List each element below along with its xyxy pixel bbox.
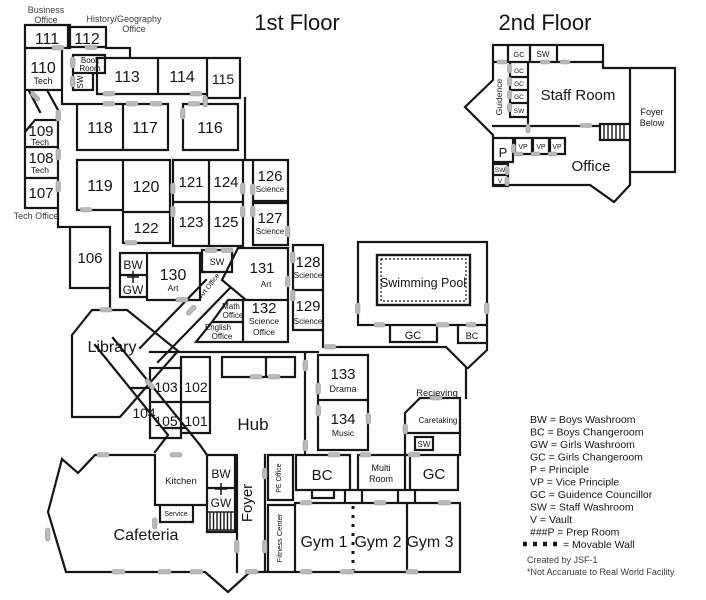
legend-line-prep: ###P = Prep Room [530, 527, 620, 539]
f2-sw1-label: SW [514, 108, 525, 115]
math-office-label-2: Office [223, 311, 244, 320]
f2-sw-top-label: SW [537, 50, 550, 59]
stairs-first-floor [207, 512, 235, 530]
school-floor-plan: 1st Floor 2nd Floor Business Office Hist… [0, 0, 706, 600]
room-119-label: 119 [87, 178, 113, 195]
room-117-label: 117 [132, 120, 158, 137]
legend-line-vp: VP = Vice Principle [530, 477, 619, 489]
room-128-label: 128 [295, 254, 320, 271]
credit-line-1: Created by JSF-1 [527, 555, 598, 565]
room-133-sub-label: Drama [329, 384, 356, 394]
gym1-label: Gym 1 [300, 534, 347, 551]
stairs-second-floor [604, 124, 624, 140]
room-108-sub-label: Tech [31, 165, 49, 175]
room-106-label: 106 [77, 250, 102, 267]
legend-line-movable-wall: = Movable Wall [563, 539, 635, 551]
english-office-label-2: Office [212, 332, 233, 341]
staff-room-label: Staff Room [541, 87, 616, 104]
foyer-below-label-1: Foyer [640, 107, 663, 117]
room-124-label: 124 [213, 174, 238, 191]
second-floor-title: 2nd Floor [499, 10, 592, 35]
caretaking-label: Caretaking [419, 416, 458, 425]
room-116-label: 116 [197, 120, 223, 137]
room-121-label: 121 [178, 174, 203, 191]
room-122-label: 122 [133, 220, 158, 237]
credit-line-2: *Not Accaruate to Real World Facility [527, 567, 675, 577]
cafeteria-label: Cafeteria [114, 527, 179, 544]
bc-changeroom-label: BC [312, 467, 333, 484]
room-123-label: 123 [178, 214, 203, 231]
room-107-label: 107 [28, 185, 53, 202]
foyer-below-label-2: Below [640, 118, 665, 128]
history-geography-office-label-2: Office [122, 24, 145, 34]
room-111-label: 111 [35, 31, 59, 48]
legend-line-p: P = Principle [530, 464, 589, 476]
legend-line-gc2: GC = Guidence Councillor [530, 489, 653, 501]
room-120-label: 120 [133, 179, 160, 196]
floor-plan-svg: 1st Floor 2nd Floor Business Office Hist… [0, 0, 706, 600]
multi-room-label-1: Multi [371, 463, 390, 473]
office-label: Office [572, 158, 611, 175]
room-104-label: 104 [132, 405, 156, 421]
legend-line-gw: GW = Girls Washroom [530, 439, 635, 451]
room-110-sub-label: Tech [33, 76, 52, 86]
room-102-label: 102 [184, 379, 208, 395]
vp1-label: VP [518, 144, 528, 151]
room-132-sub-label-2: Office [253, 327, 275, 337]
room-118-label: 118 [87, 120, 113, 137]
service-label: Service [164, 511, 187, 518]
multi-room-label-2: Room [369, 474, 393, 484]
business-office-label-1: Business [28, 5, 65, 15]
first-floor-title: 1st Floor [254, 10, 340, 35]
room-110-label: 110 [30, 60, 56, 77]
library-label: Library [88, 339, 137, 356]
room-115-label: 115 [212, 71, 235, 87]
gym2-label: Gym 2 [354, 534, 401, 551]
room-126-label: 126 [257, 168, 282, 185]
room-133-label: 133 [330, 366, 355, 383]
f2-gc1-label: GC [514, 68, 524, 75]
caretaking-sw-label: SW [418, 440, 431, 449]
room-131-label: 131 [249, 260, 274, 277]
gym3-label: Gym 3 [406, 534, 453, 551]
principle-label: P [499, 145, 508, 160]
english-office-label-1: English [205, 323, 231, 332]
room-114-label: 114 [169, 69, 195, 86]
hub-label: Hub [237, 415, 268, 434]
gw-washroom-label: GW [123, 283, 144, 297]
legend: BW = Boys Washroom BC = Boys Changeroom … [523, 414, 675, 577]
room-134-label: 134 [330, 411, 355, 428]
room-126-sub-label: Science [256, 185, 285, 194]
f2-sw2-label: SW [495, 167, 506, 174]
room-109-sub-label: Tech [31, 137, 49, 147]
room-128-sub-label: Science [294, 271, 323, 280]
room-132-sub-label-1: Science [249, 316, 280, 326]
fitness-center-label: Fitness Center [275, 513, 284, 562]
tech-office-label: Tech Office [14, 211, 59, 221]
vp3-label: VP [552, 144, 562, 151]
bw2-washroom-label: BW [211, 467, 231, 481]
book-room-label-2: Room [79, 64, 101, 73]
room-105-label: 105 [154, 413, 178, 429]
room-129-label: 129 [295, 298, 320, 315]
room-125-label: 125 [213, 214, 238, 231]
vp2-label: VP [536, 144, 546, 151]
f2-gc-top-label: GC [513, 50, 525, 59]
pe-office-label: PE Office [276, 463, 283, 493]
room-134-sub-label: Music [332, 428, 355, 438]
foyer-label: Foyer [239, 484, 256, 522]
room-129-sub-label: Science [294, 317, 323, 326]
history-geography-office-label-1: History/Geography [86, 14, 162, 24]
room-112-label: 112 [74, 31, 100, 48]
room-113-label: 113 [114, 69, 140, 86]
room-130-label: 130 [160, 267, 187, 284]
legend-line-bc: BC = Boys Changeroom [530, 427, 644, 439]
legend-line-gc: GC = Girls Changeroom [530, 452, 643, 464]
legend-line-sw: SW = Staff Washroom [530, 502, 634, 514]
swimming-pool-label: Swimming Pool [380, 276, 466, 290]
legend-line-bw: BW = Boys Washroom [530, 414, 636, 426]
f2-gc2-label: GC [514, 81, 524, 88]
pool-bc-label: BC [466, 331, 479, 341]
kitchen-label: Kitchen [165, 476, 197, 487]
room-130-sub-label: Art [168, 283, 180, 293]
room-132-label: 132 [251, 300, 276, 317]
pool-gc-label: GC [405, 330, 422, 342]
vault-label: V [498, 178, 503, 185]
room-127-label: 127 [257, 210, 282, 227]
business-office-label-2: Office [34, 15, 57, 25]
f2-gc3-label: GC [514, 94, 524, 101]
room-127-sub-label: Science [256, 227, 285, 236]
legend-line-v: V = Vault [530, 514, 572, 526]
room-101-label: 101 [184, 413, 208, 429]
gc-changeroom-label: GC [423, 466, 446, 483]
book-sw-label: SW [76, 75, 85, 88]
gw2-washroom-label: GW [211, 496, 232, 510]
math-office-label-1: Math [222, 302, 240, 311]
bw-washroom-label: BW [123, 258, 143, 272]
room-103-label: 103 [154, 379, 178, 395]
sw-art-label: SW [210, 257, 225, 267]
recieving-label: Recieving [416, 388, 458, 399]
guidence-label: Guidence [494, 79, 504, 116]
room-131-sub-label: Art [261, 279, 273, 289]
